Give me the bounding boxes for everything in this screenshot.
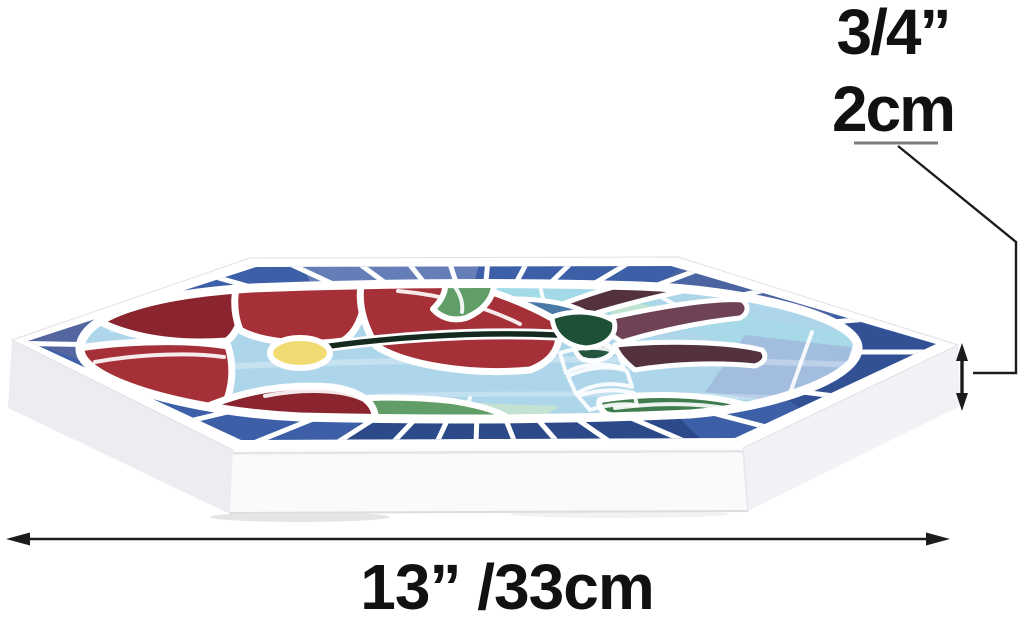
flower-center — [270, 338, 330, 368]
thickness-cm: 2cm — [812, 71, 974, 148]
front-top-highlight — [233, 448, 743, 450]
thickness-inches: 3/4” — [812, 0, 974, 71]
tile-front-face — [230, 448, 748, 514]
width-label: 13” /33cm — [300, 551, 714, 623]
thickness-label: 3/4” 2cm — [812, 0, 974, 148]
product-dimension-image: 3/4” 2cm 13” /33cm — [0, 0, 1024, 623]
width-dimension-line — [6, 533, 950, 546]
wing-lower — [615, 342, 765, 370]
